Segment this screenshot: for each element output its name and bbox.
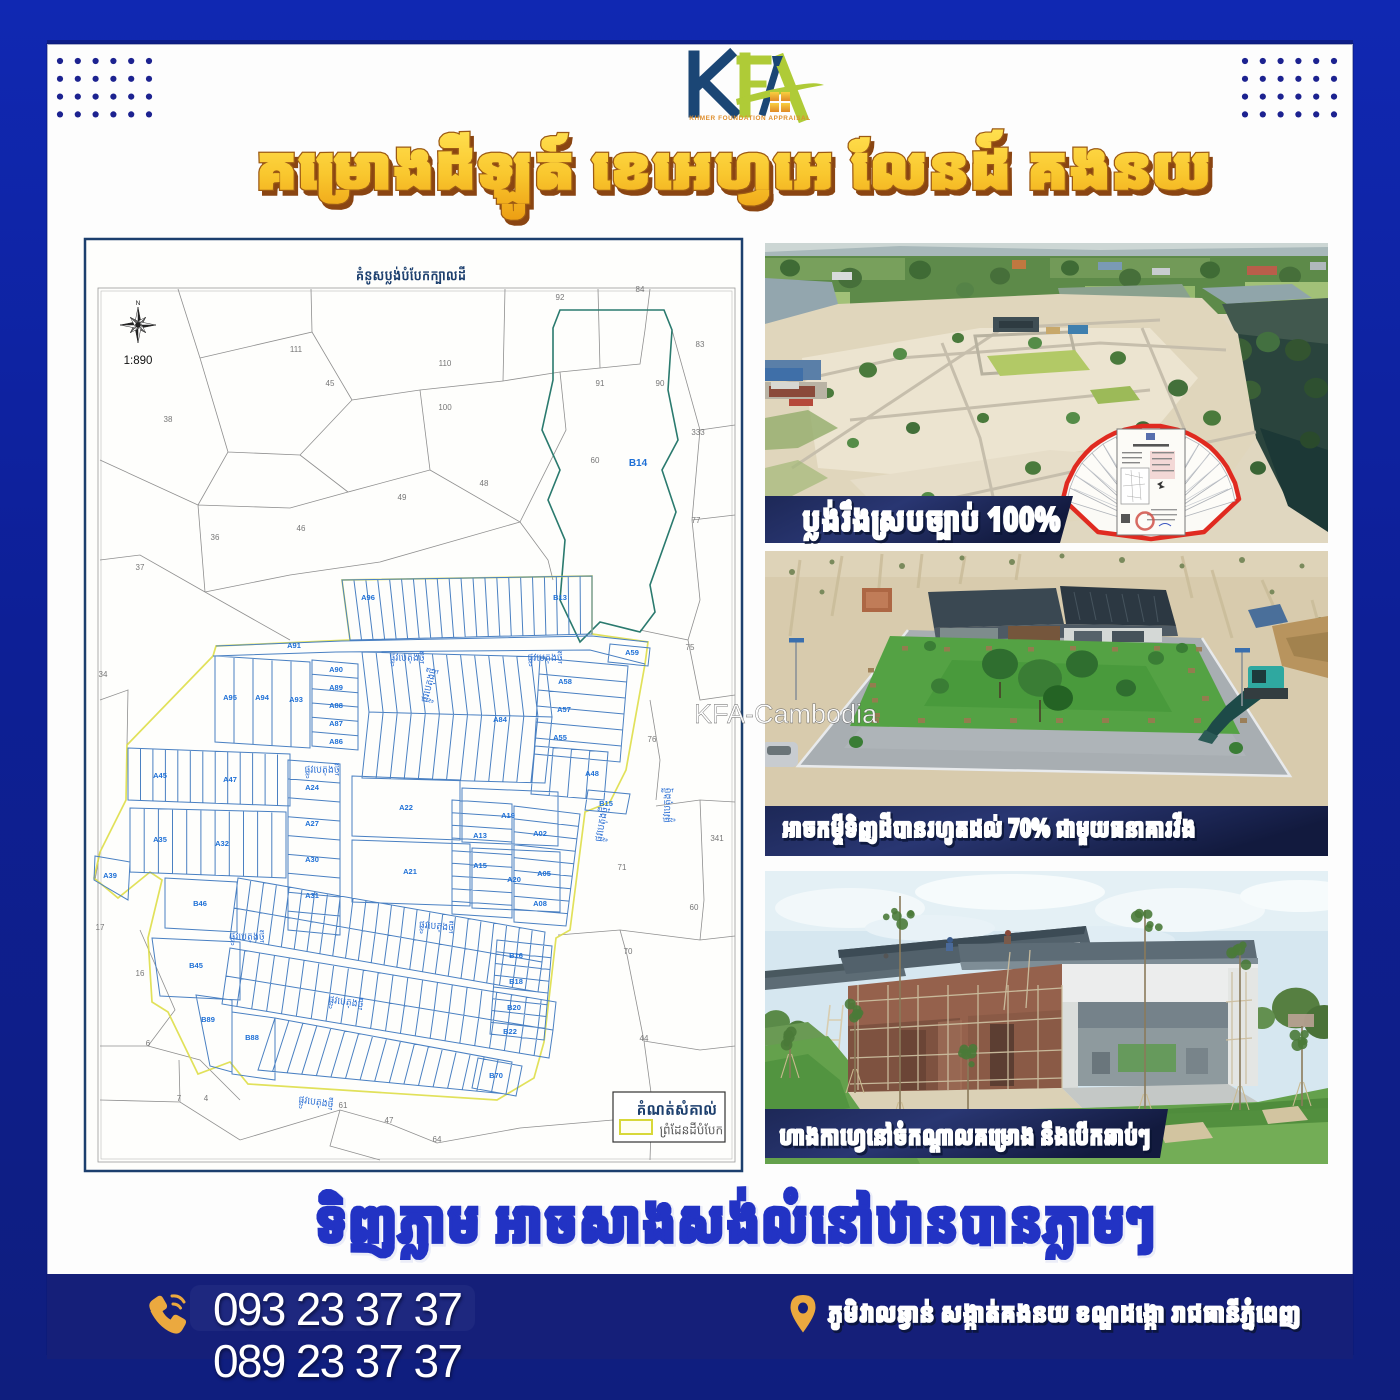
svg-text:B18: B18: [509, 977, 523, 986]
svg-text:70: 70: [624, 947, 633, 956]
svg-text:A84: A84: [493, 715, 508, 724]
svg-text:A93: A93: [289, 695, 303, 704]
svg-text:A30: A30: [305, 855, 319, 864]
svg-text:46: 46: [297, 524, 306, 533]
svg-text:A39: A39: [103, 871, 117, 880]
svg-text:A15: A15: [473, 861, 487, 870]
svg-text:A48: A48: [585, 769, 599, 778]
svg-text:A59: A59: [625, 648, 639, 657]
svg-text:37: 37: [136, 563, 145, 572]
svg-text:A05: A05: [537, 869, 551, 878]
svg-text:47: 47: [385, 1116, 394, 1125]
svg-text:333: 333: [691, 428, 705, 437]
svg-text:093 23 37 37: 093 23 37 37: [213, 1283, 463, 1335]
svg-text:A86: A86: [329, 737, 343, 746]
svg-text:B16: B16: [509, 951, 523, 960]
svg-text:44: 44: [640, 1034, 649, 1043]
svg-text:A58: A58: [558, 677, 572, 686]
svg-text:36: 36: [211, 533, 220, 542]
svg-text:7: 7: [177, 1094, 182, 1103]
svg-text:A20: A20: [507, 875, 521, 884]
svg-text:48: 48: [480, 479, 489, 488]
svg-text:34: 34: [99, 670, 108, 679]
svg-text:B22: B22: [503, 1027, 517, 1036]
svg-text:KHMER FOUNDATION APPRAISAL: KHMER FOUNDATION APPRAISAL: [689, 115, 810, 122]
svg-text:A91: A91: [287, 641, 301, 650]
svg-text:110: 110: [439, 359, 452, 368]
svg-text:45: 45: [326, 379, 335, 388]
svg-text:A90: A90: [329, 665, 343, 674]
svg-text:83: 83: [696, 340, 705, 349]
svg-text:1:890: 1:890: [124, 355, 153, 367]
svg-text:089 23 37 37: 089 23 37 37: [213, 1335, 463, 1387]
svg-text:17: 17: [96, 923, 105, 932]
svg-text:B70: B70: [489, 1071, 503, 1080]
svg-text:A31: A31: [305, 891, 319, 900]
svg-text:77: 77: [692, 516, 701, 525]
svg-text:A94: A94: [255, 693, 270, 702]
svg-text:A19: A19: [501, 811, 515, 820]
svg-text:61: 61: [339, 1101, 348, 1110]
svg-text:60: 60: [690, 903, 699, 912]
svg-text:A96: A96: [361, 593, 375, 602]
svg-text:B20: B20: [507, 1003, 521, 1012]
svg-text:A08: A08: [533, 899, 547, 908]
svg-text:A89: A89: [329, 683, 343, 692]
svg-text:A87: A87: [329, 719, 343, 728]
svg-text:49: 49: [398, 493, 407, 502]
svg-text:N: N: [136, 300, 141, 307]
svg-text:A24: A24: [305, 783, 320, 792]
svg-text:KFA-Cambodia: KFA-Cambodia: [694, 699, 878, 729]
svg-text:B13: B13: [553, 593, 567, 602]
svg-text:B88: B88: [245, 1033, 259, 1042]
svg-text:B45: B45: [189, 961, 203, 970]
svg-text:341: 341: [710, 834, 724, 843]
svg-text:A02: A02: [533, 829, 547, 838]
svg-text:B46: B46: [193, 899, 207, 908]
svg-text:4: 4: [204, 1094, 209, 1103]
svg-text:B14: B14: [629, 458, 648, 469]
svg-text:A35: A35: [153, 835, 167, 844]
svg-text:A95: A95: [223, 693, 237, 702]
svg-text:75: 75: [686, 643, 695, 652]
svg-text:A57: A57: [557, 705, 571, 714]
svg-text:100: 100: [438, 403, 452, 412]
svg-text:90: 90: [656, 379, 665, 388]
svg-text:A55: A55: [553, 733, 567, 742]
svg-text:A47: A47: [223, 775, 237, 784]
svg-text:B15: B15: [599, 799, 613, 808]
svg-text:B89: B89: [201, 1015, 215, 1024]
svg-text:16: 16: [136, 969, 145, 978]
svg-text:60: 60: [591, 456, 600, 465]
svg-text:111: 111: [290, 345, 303, 354]
svg-text:64: 64: [433, 1135, 442, 1144]
svg-text:A21: A21: [403, 867, 417, 876]
svg-text:92: 92: [556, 293, 565, 302]
svg-text:A13: A13: [473, 831, 487, 840]
svg-text:A27: A27: [305, 819, 319, 828]
svg-text:71: 71: [618, 863, 627, 872]
svg-text:A45: A45: [153, 771, 167, 780]
svg-text:A88: A88: [329, 701, 343, 710]
svg-text:A22: A22: [399, 803, 413, 812]
svg-text:38: 38: [164, 415, 173, 424]
svg-text:76: 76: [648, 735, 657, 744]
svg-text:A32: A32: [215, 839, 229, 848]
svg-text:84: 84: [636, 285, 645, 294]
svg-text:6: 6: [146, 1039, 151, 1048]
svg-text:91: 91: [596, 379, 605, 388]
